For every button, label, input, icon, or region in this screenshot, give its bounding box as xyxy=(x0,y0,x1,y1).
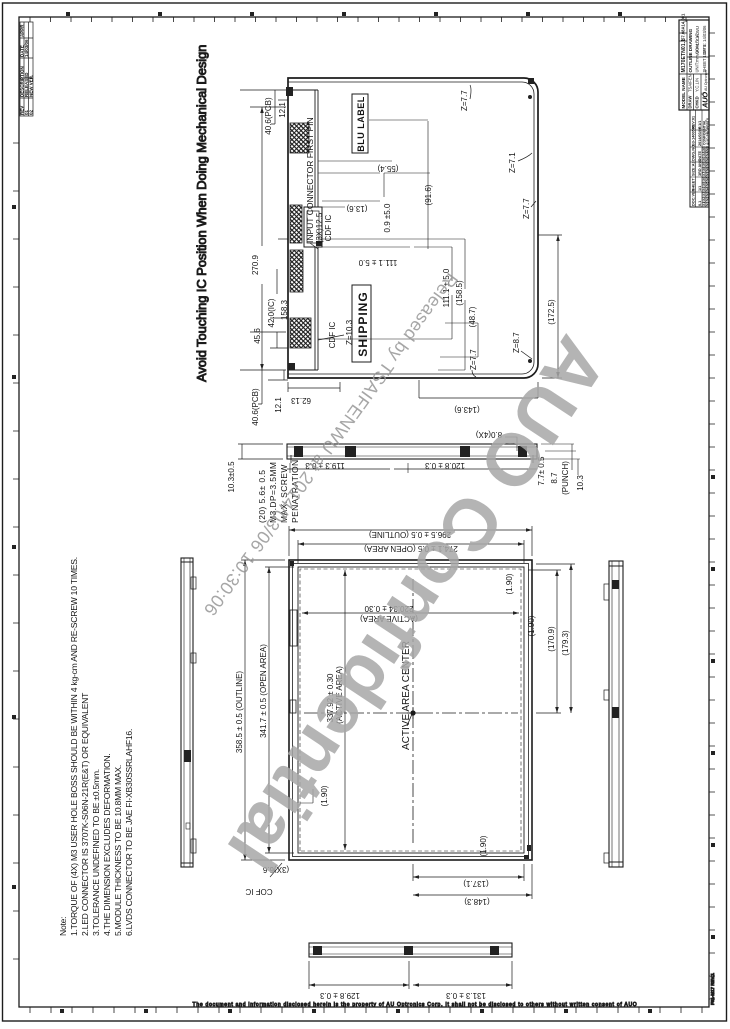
svg-text:N9: N9 xyxy=(706,162,710,166)
svg-text:N8: N8 xyxy=(706,167,710,171)
svg-text:M170ETN01.1: M170ETN01.1 xyxy=(681,39,687,73)
svg-text:12.1: 12.1 xyxy=(274,397,283,413)
svg-text:Note:: Note: xyxy=(58,917,68,936)
svg-text:SIZE:A3: SIZE:A3 xyxy=(691,161,695,176)
svg-text:AU Optronics: AU Optronics xyxy=(704,70,708,91)
svg-text:2.LED CONNECTOR IS 3707K-S06N-: 2.LED CONNECTOR IS 3707K-S06N-21R(E&T) O… xyxy=(80,692,90,936)
svg-text:10.3±0.5: 10.3±0.5 xyxy=(227,461,236,493)
svg-text:1.TORQUE OF (4X) M3 USER HOLE: 1.TORQUE OF (4X) M3 USER HOLE BOSS SHOUL… xyxy=(69,557,79,936)
svg-text:N4: N4 xyxy=(706,187,710,191)
svg-text:129.8 ± 0.3: 129.8 ± 0.3 xyxy=(319,991,360,1000)
svg-text:TSAIFEN: TSAIFEN xyxy=(688,74,693,92)
svg-text:0.9 ±5.0: 0.9 ±5.0 xyxy=(383,203,392,232)
svg-text:NB: NB xyxy=(706,146,710,151)
svg-text:Z=8.7: Z=8.7 xyxy=(512,332,521,353)
svg-text:111.1 ± 5.0: 111.1 ± 5.0 xyxy=(358,258,397,267)
svg-text:APPR: K.H.WU: APPR: K.H.WU xyxy=(695,26,700,55)
svg-text:BLU LABEL: BLU LABEL xyxy=(356,96,366,152)
svg-text:10.3: 10.3 xyxy=(576,475,585,491)
svg-text:62.13: 62.13 xyxy=(290,396,311,405)
svg-text:Y.C.LIN: Y.C.LIN xyxy=(695,78,700,92)
svg-text:(148.3): (148.3) xyxy=(464,897,490,906)
svg-text:AUO PROPERTY: AUO PROPERTY xyxy=(706,117,710,145)
svg-text:(172.5): (172.5) xyxy=(547,299,556,325)
svg-text:N3: N3 xyxy=(706,192,710,196)
svg-text:P.1/1: P.1/1 xyxy=(698,121,702,129)
svg-text:(48.7): (48.7) xyxy=(468,306,477,327)
svg-text:N5: N5 xyxy=(706,182,710,186)
svg-text:NEW VER.: NEW VER. xyxy=(28,75,33,97)
svg-text:CHKD: CHKD xyxy=(695,96,700,108)
svg-text:270.9: 270.9 xyxy=(251,254,260,275)
svg-text:(1.90): (1.90) xyxy=(479,835,488,856)
svg-text:158.3: 158.3 xyxy=(280,299,289,320)
svg-text:The document and information d: The document and information disclosed h… xyxy=(193,1002,638,1008)
svg-text:4.THE DIMENSION EXCLUDES DEFOR: 4.THE DIMENSION EXCLUDES DEFORMATION. xyxy=(102,753,112,936)
svg-text:358.5 ± 0.5 (OUTLINE): 358.5 ± 0.5 (OUTLINE) xyxy=(235,671,244,754)
svg-text:(170.9): (170.9) xyxy=(547,626,556,652)
svg-text:MODEL NAME: MODEL NAME xyxy=(681,77,686,108)
svg-text:14/03/06: 14/03/06 xyxy=(24,39,29,57)
svg-text:(179.3): (179.3) xyxy=(561,630,570,656)
svg-text:341.7 ± 0.5 (OPEN AREA): 341.7 ± 0.5 (OPEN AREA) xyxy=(259,644,268,738)
svg-text:Z=7.1: Z=7.1 xyxy=(508,152,517,173)
svg-text:F01-M17 REV.1: F01-M17 REV.1 xyxy=(710,973,715,1005)
svg-text:Z=10.3: Z=10.3 xyxy=(345,319,354,345)
svg-text:131.3 ± 0.3: 131.3 ± 0.3 xyxy=(445,991,486,1000)
svg-text:N7: N7 xyxy=(706,172,710,176)
svg-text:3.TOLERANCE UNDEFINED TO BE ±0: 3.TOLERANCE UNDEFINED TO BE ±0.5mm. xyxy=(91,769,101,936)
svg-text:CDF IC: CDF IC xyxy=(328,321,337,348)
svg-text:NA: NA xyxy=(706,151,710,156)
svg-text:DRAW: DRAW xyxy=(688,96,693,109)
svg-text:SHEET: SHEET xyxy=(691,178,695,191)
svg-text:SHIPPING: SHIPPING xyxy=(356,291,370,356)
svg-text:45.6: 45.6 xyxy=(253,328,262,344)
svg-text:N6: N6 xyxy=(706,177,710,181)
svg-text:Z=7.7: Z=7.7 xyxy=(460,90,469,111)
svg-text:DOC.VER: DOC.VER xyxy=(691,188,695,206)
svg-text:(55.4): (55.4) xyxy=(377,164,398,173)
svg-text:40.6(PCB): 40.6(PCB) xyxy=(264,97,273,135)
svg-text:INPUT CONNECTOR FIRST PIN: INPUT CONNECTOR FIRST PIN xyxy=(305,117,315,243)
svg-text:N0: N0 xyxy=(706,157,710,161)
svg-text:42.0(IC): 42.0(IC) xyxy=(267,298,276,327)
svg-text:40.6(PCB): 40.6(PCB) xyxy=(251,388,260,426)
svg-text:5.MODULE THICKNESS TO BE 10.8M: 5.MODULE THICKNESS TO BE 10.8MM MAX. xyxy=(113,765,123,936)
svg-text:Z=7.7: Z=7.7 xyxy=(469,349,478,370)
svg-text:OUTLINE DRAWING: OUTLINE DRAWING xyxy=(688,28,693,72)
svg-text:DATE: 14/03/06: DATE: 14/03/06 xyxy=(702,25,707,55)
svg-text:(143.6): (143.6) xyxy=(454,405,480,414)
svg-text:APPR: APPR xyxy=(20,24,25,37)
svg-text:(137.1): (137.1) xyxy=(463,879,489,888)
svg-text:2014/03/06: 2014/03/06 xyxy=(698,127,702,146)
svg-text:REV:01: REV:01 xyxy=(691,116,695,129)
svg-text:6.LVDS CONNECTOR TO BE JAE FI-: 6.LVDS CONNECTOR TO BE JAE FI-XB30SSRLAH… xyxy=(124,729,134,936)
svg-text:DWG.NO: DWG.NO xyxy=(691,145,695,161)
svg-text:N1: N1 xyxy=(706,202,710,206)
svg-text:Z=7.7: Z=7.7 xyxy=(522,198,531,219)
svg-text:57.08A14.001: 57.08A14.001 xyxy=(681,13,686,40)
svg-text:(PUNCH): (PUNCH) xyxy=(561,461,570,495)
svg-text:(1.90): (1.90) xyxy=(505,573,514,594)
svg-text:(91.6): (91.6) xyxy=(424,184,433,205)
svg-text:COF IC: COF IC xyxy=(245,887,272,896)
svg-text:02: 02 xyxy=(28,109,33,115)
svg-text:CDF IC: CDF IC xyxy=(324,214,333,241)
svg-text:Avoid Touching IC Position Whe: Avoid Touching IC Position When Doing Me… xyxy=(194,45,209,382)
svg-text:(3X)12.5: (3X)12.5 xyxy=(315,212,324,243)
svg-text:12.1: 12.1 xyxy=(278,102,287,118)
svg-text:(13.6): (13.6) xyxy=(346,204,367,213)
svg-text:(1.90): (1.90) xyxy=(527,615,536,636)
svg-text:N2: N2 xyxy=(706,197,710,201)
svg-text:®: ® xyxy=(701,92,705,95)
